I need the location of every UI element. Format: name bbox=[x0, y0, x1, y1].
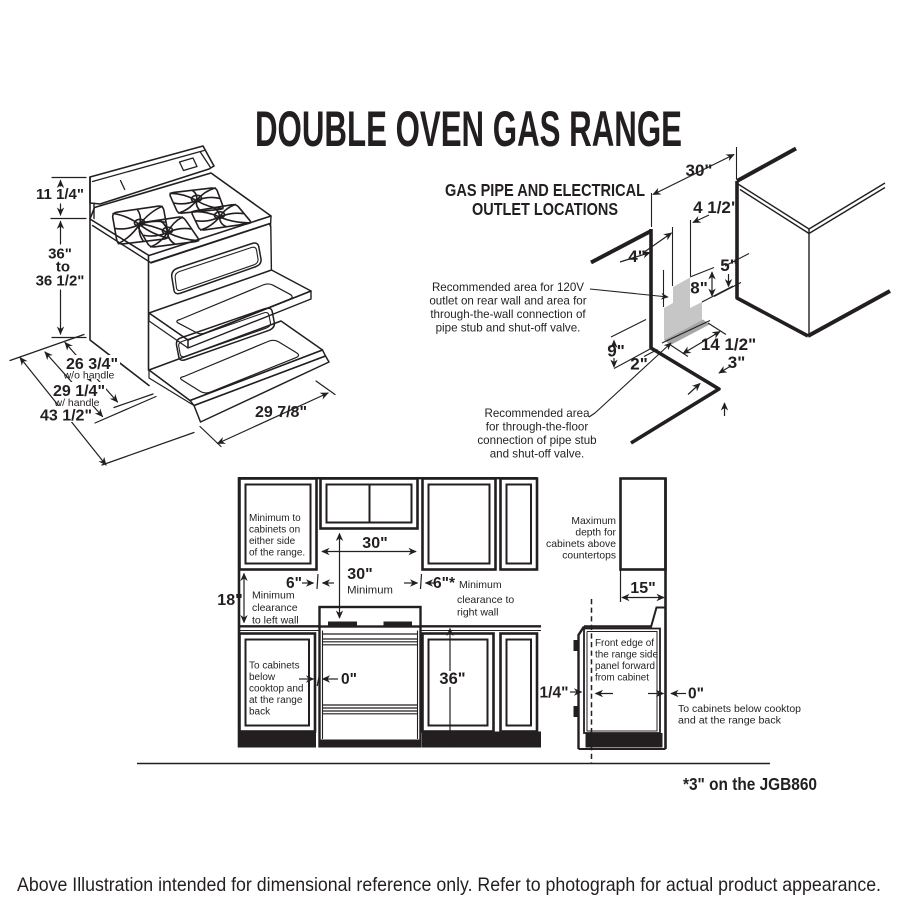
svg-text:Minimum to: Minimum to bbox=[249, 513, 301, 524]
svg-text:from cabinet: from cabinet bbox=[595, 673, 649, 684]
svg-text:and at the range back: and at the range back bbox=[678, 716, 782, 727]
svg-text:outlet on rear wall and area f: outlet on rear wall and area for bbox=[429, 295, 586, 308]
svg-text:back: back bbox=[249, 707, 271, 718]
svg-text:Recommended area: Recommended area bbox=[484, 407, 590, 420]
svg-text:4 1/2": 4 1/2" bbox=[693, 198, 739, 217]
svg-text:the range side: the range side bbox=[595, 650, 658, 661]
svg-text:5": 5" bbox=[720, 256, 738, 275]
svg-text:to left wall: to left wall bbox=[252, 615, 299, 627]
svg-text:0": 0" bbox=[688, 686, 704, 703]
svg-text:cabinets above: cabinets above bbox=[546, 539, 616, 550]
svg-text:depth for: depth for bbox=[575, 528, 616, 539]
svg-text:18": 18" bbox=[217, 592, 242, 609]
svg-text:cabinets on: cabinets on bbox=[249, 525, 300, 536]
svg-text:and shut-off valve.: and shut-off valve. bbox=[490, 448, 585, 461]
svg-text:Minimum: Minimum bbox=[459, 579, 502, 591]
svg-text:clearance to: clearance to bbox=[457, 594, 514, 606]
svg-text:To cabinets below cooktop: To cabinets below cooktop bbox=[678, 704, 801, 715]
svg-text:clearance: clearance bbox=[252, 602, 298, 614]
svg-text:right wall: right wall bbox=[457, 607, 498, 619]
svg-text:30": 30" bbox=[362, 535, 387, 552]
svg-text:9": 9" bbox=[607, 342, 625, 361]
svg-text:Front edge of: Front edge of bbox=[595, 638, 654, 649]
svg-text:36": 36" bbox=[439, 670, 465, 688]
svg-text:OUTLET LOCATIONS: OUTLET LOCATIONS bbox=[472, 199, 618, 219]
svg-text:below: below bbox=[249, 672, 276, 683]
svg-text:at the range: at the range bbox=[249, 695, 303, 706]
svg-text:36 1/2": 36 1/2" bbox=[36, 273, 85, 290]
svg-text:11 1/4": 11 1/4" bbox=[36, 186, 84, 203]
svg-text:29 7/8": 29 7/8" bbox=[255, 404, 307, 421]
svg-text:3": 3" bbox=[728, 353, 746, 372]
svg-text:8": 8" bbox=[690, 279, 708, 298]
svg-text:30": 30" bbox=[347, 566, 372, 583]
svg-text:either side: either side bbox=[249, 536, 296, 547]
svg-text:30": 30" bbox=[686, 161, 713, 180]
svg-text:panel forward: panel forward bbox=[595, 661, 655, 672]
svg-text:Above Illustration intended fo: Above Illustration intended for dimensio… bbox=[17, 874, 881, 896]
svg-text:for through-the-floor: for through-the-floor bbox=[486, 421, 589, 434]
svg-text:pipe stub and shut-off valve.: pipe stub and shut-off valve. bbox=[436, 322, 581, 335]
svg-text:Recommended area for 120V: Recommended area for 120V bbox=[432, 281, 584, 294]
svg-text:countertops: countertops bbox=[562, 551, 616, 562]
svg-text:Minimum: Minimum bbox=[252, 590, 295, 602]
svg-text:43 1/2": 43 1/2" bbox=[40, 408, 92, 425]
svg-text:15": 15" bbox=[630, 580, 655, 597]
svg-text:DOUBLE OVEN GAS RANGE: DOUBLE OVEN GAS RANGE bbox=[255, 101, 682, 157]
svg-text:Minimum: Minimum bbox=[347, 585, 393, 597]
svg-text:1/4": 1/4" bbox=[540, 685, 569, 702]
svg-text:connection of pipe stub: connection of pipe stub bbox=[477, 434, 596, 447]
svg-text:through-the-wall connection of: through-the-wall connection of bbox=[430, 308, 586, 321]
svg-text:cooktop and: cooktop and bbox=[249, 684, 304, 695]
svg-text:GAS PIPE AND ELECTRICAL: GAS PIPE AND ELECTRICAL bbox=[445, 180, 645, 200]
svg-text:2": 2" bbox=[630, 355, 648, 374]
svg-text:*3" on the JGB860: *3" on the JGB860 bbox=[683, 774, 817, 794]
svg-text:0": 0" bbox=[341, 671, 357, 688]
svg-text:6"*: 6"* bbox=[433, 575, 456, 592]
svg-text:Maximum: Maximum bbox=[571, 516, 616, 527]
svg-text:of the range.: of the range. bbox=[249, 548, 305, 559]
svg-text:To cabinets: To cabinets bbox=[249, 661, 300, 672]
